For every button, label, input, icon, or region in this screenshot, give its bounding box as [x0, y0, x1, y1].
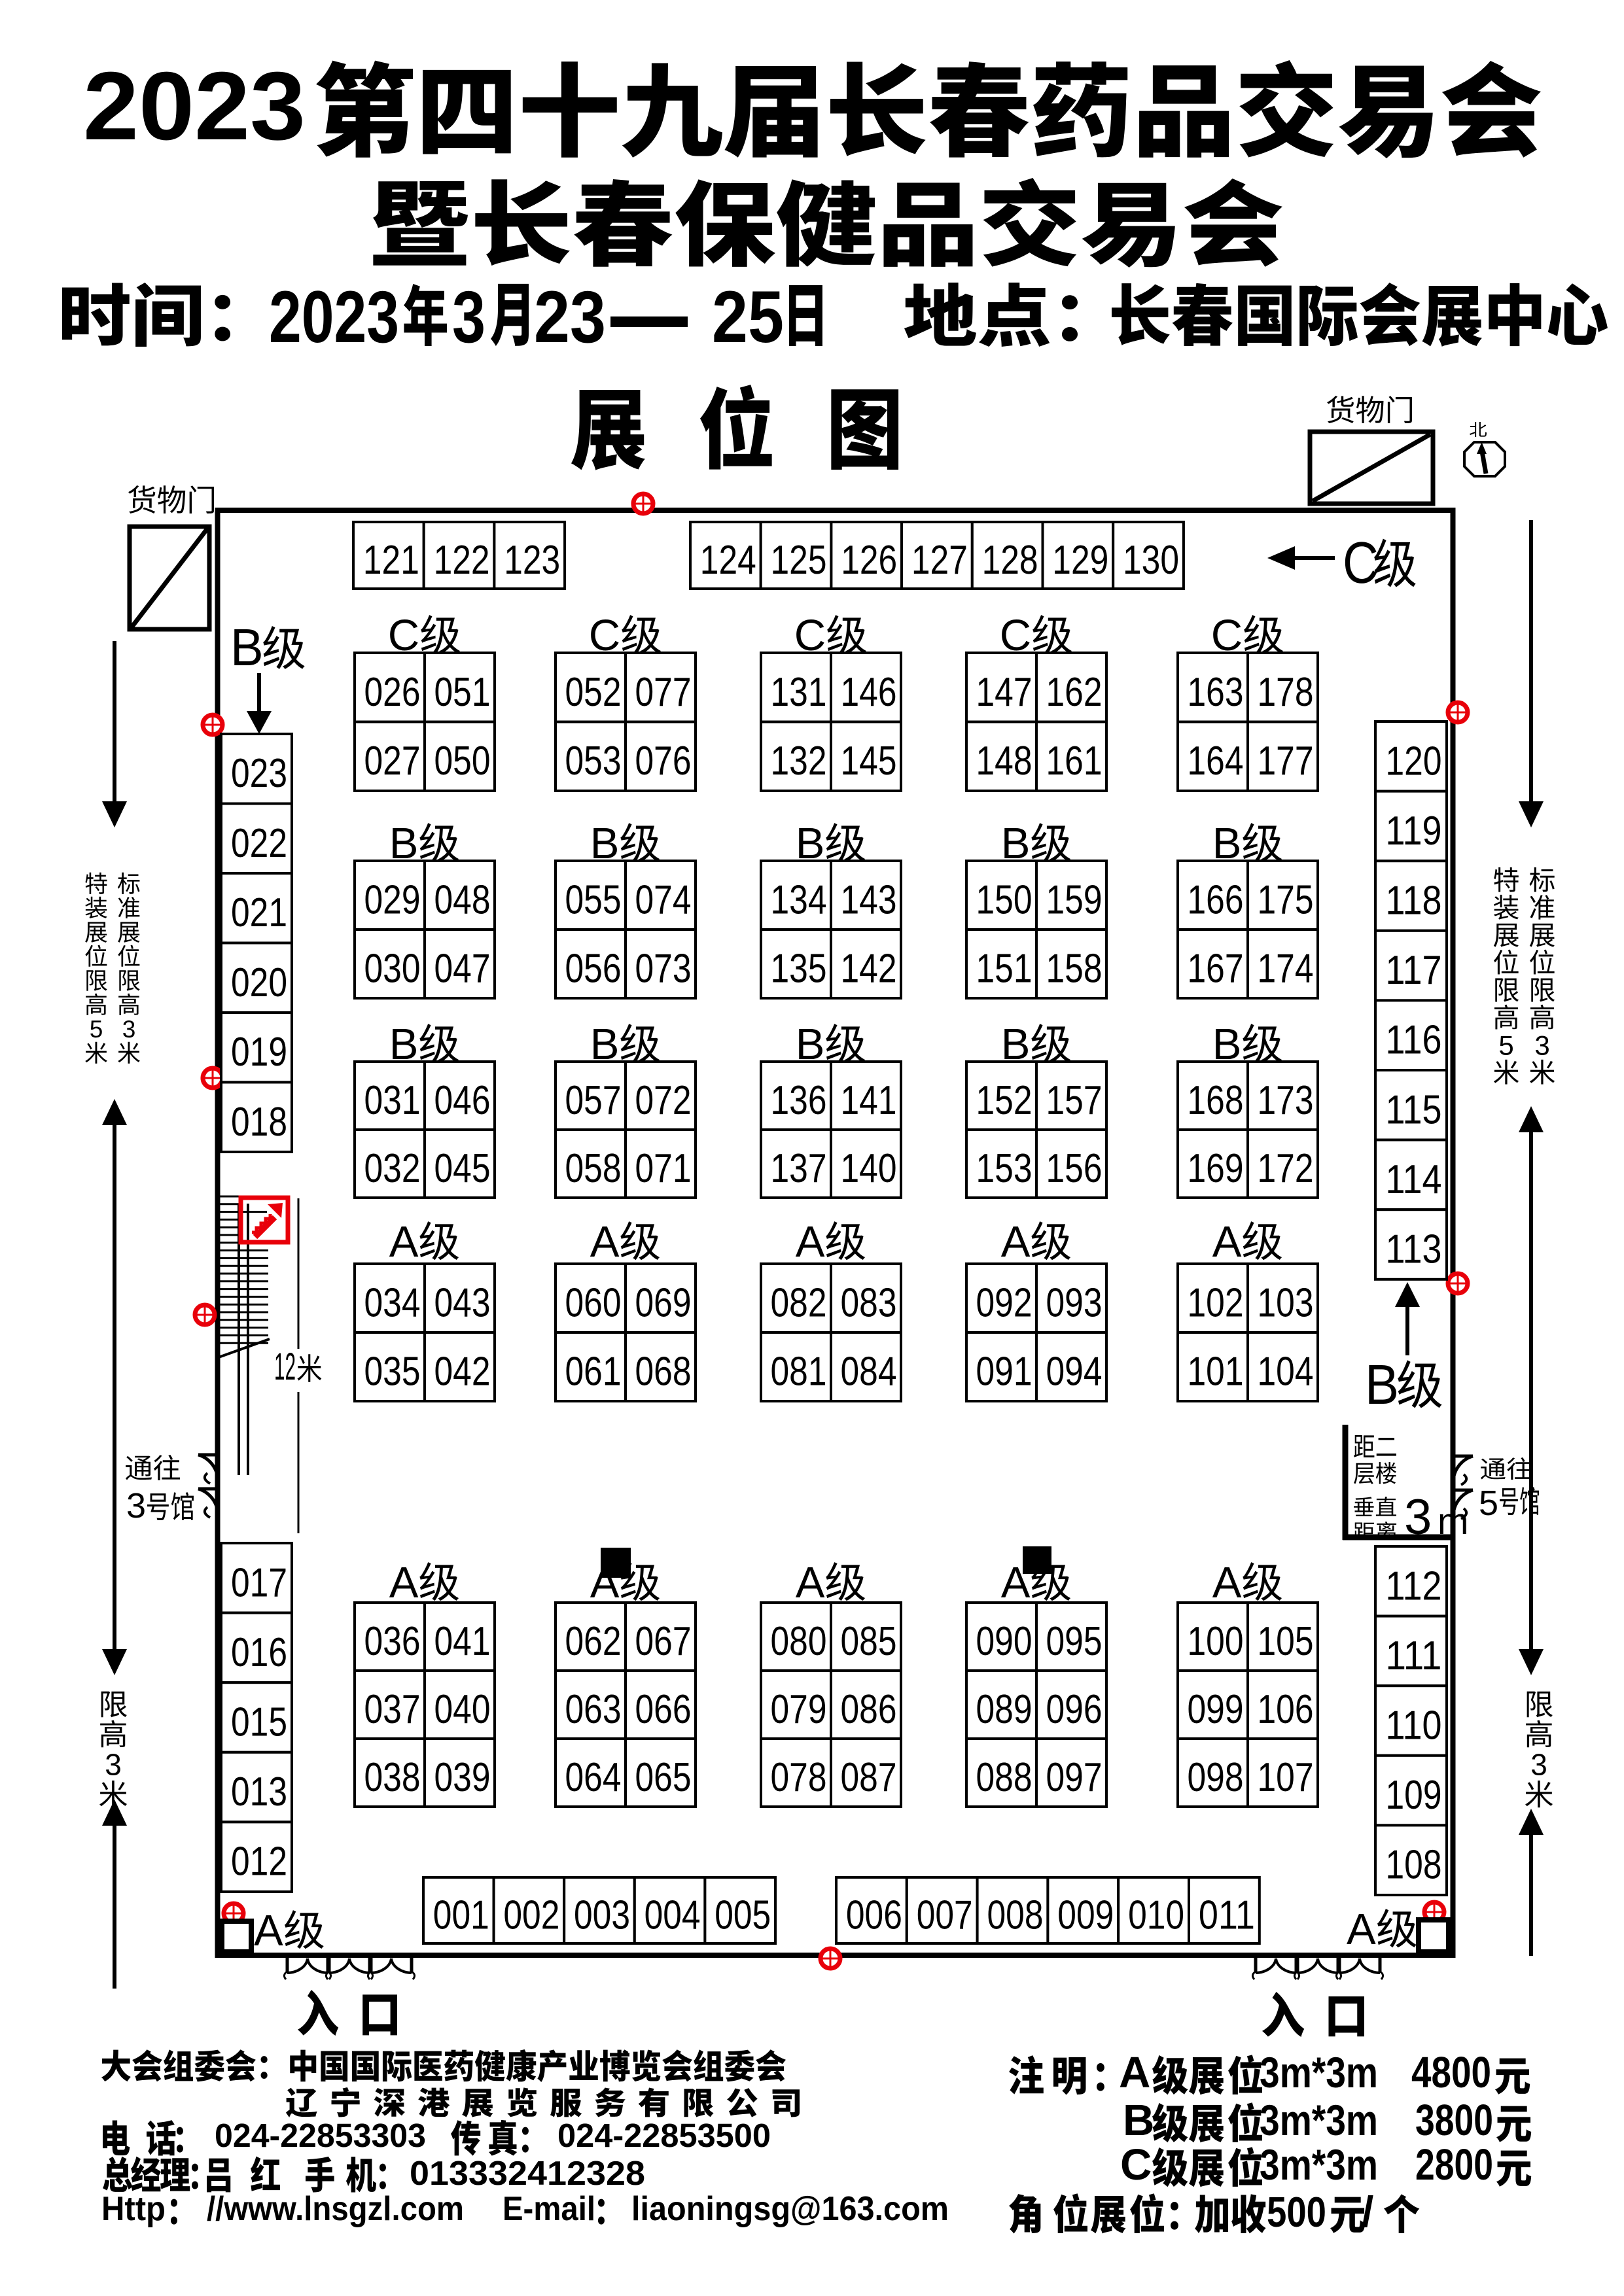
svg-text:034: 034 [364, 1281, 421, 1326]
svg-text:001: 001 [433, 1893, 489, 1938]
svg-text:500: 500 [1267, 2188, 1326, 2236]
svg-text:027: 027 [364, 739, 421, 784]
svg-text:150: 150 [976, 878, 1033, 923]
svg-text:136: 136 [771, 1078, 827, 1123]
svg-text:23: 23 [534, 276, 606, 358]
svg-text:141: 141 [841, 1078, 897, 1123]
svg-text:5: 5 [1479, 1484, 1498, 1523]
svg-text:liaoningsg@163.com: liaoningsg@163.com [631, 2190, 949, 2228]
svg-text:A: A [1212, 1217, 1242, 1266]
svg-text:099: 099 [1188, 1687, 1244, 1732]
svg-text:043: 043 [434, 1281, 491, 1326]
svg-text:057: 057 [565, 1078, 622, 1123]
svg-text:076: 076 [635, 739, 692, 784]
svg-text:039: 039 [434, 1755, 491, 1800]
svg-text:119: 119 [1386, 809, 1442, 854]
svg-text:A: A [389, 1217, 419, 1266]
svg-text:116: 116 [1386, 1018, 1442, 1063]
svg-text:019: 019 [231, 1030, 287, 1075]
svg-text:053: 053 [565, 739, 622, 784]
svg-text:178: 178 [1258, 670, 1314, 715]
svg-text:3: 3 [1534, 1030, 1549, 1060]
svg-text:4800: 4800 [1411, 2048, 1491, 2097]
svg-text:029: 029 [364, 878, 421, 923]
svg-text:016: 016 [231, 1630, 287, 1675]
svg-text:101: 101 [1188, 1349, 1244, 1395]
svg-text:3800: 3800 [1415, 2096, 1493, 2145]
svg-text:177: 177 [1258, 739, 1314, 784]
svg-text:050: 050 [434, 739, 491, 784]
svg-text:130: 130 [1123, 538, 1179, 583]
svg-text:169: 169 [1188, 1146, 1244, 1191]
svg-text:110: 110 [1386, 1703, 1442, 1748]
svg-text:018: 018 [231, 1100, 287, 1145]
svg-text:113: 113 [1386, 1227, 1442, 1272]
svg-text:159: 159 [1046, 878, 1103, 923]
svg-text:121: 121 [363, 538, 419, 583]
svg-text:074: 074 [635, 878, 692, 923]
svg-text:056: 056 [565, 947, 622, 992]
svg-text:145: 145 [841, 739, 897, 784]
svg-text:A: A [796, 1558, 825, 1607]
svg-text:A: A [1212, 1558, 1242, 1607]
svg-text:108: 108 [1386, 1843, 1442, 1888]
svg-text:030: 030 [364, 947, 421, 992]
svg-text:004: 004 [644, 1893, 701, 1938]
svg-text:3: 3 [452, 276, 485, 358]
svg-text:3: 3 [1404, 1489, 1432, 1545]
svg-text:012: 012 [231, 1839, 287, 1885]
svg-text:102: 102 [1188, 1281, 1244, 1326]
svg-text:118: 118 [1386, 878, 1442, 924]
svg-text:E-mail: E-mail [503, 2190, 595, 2228]
svg-text:146: 146 [841, 670, 897, 715]
svg-text:174: 174 [1258, 947, 1314, 992]
svg-text:041: 041 [434, 1619, 491, 1664]
svg-text:A: A [254, 1906, 283, 1955]
svg-text:123: 123 [504, 538, 560, 583]
svg-text:143: 143 [841, 878, 897, 923]
svg-text:3m*3m: 3m*3m [1260, 2048, 1378, 2096]
svg-text:158: 158 [1046, 947, 1103, 992]
svg-text:026: 026 [364, 670, 421, 715]
svg-text:120: 120 [1386, 739, 1442, 784]
svg-text:017: 017 [231, 1560, 287, 1605]
svg-text://www.lnsgzl.com: //www.lnsgzl.com [207, 2190, 464, 2228]
svg-text:124: 124 [700, 538, 756, 583]
svg-text:106: 106 [1258, 1687, 1314, 1732]
svg-text:003: 003 [574, 1893, 630, 1938]
svg-text:090: 090 [976, 1619, 1033, 1664]
svg-text:3m*3m: 3m*3m [1260, 2140, 1378, 2189]
svg-text:009: 009 [1057, 1893, 1114, 1938]
svg-text:006: 006 [846, 1893, 902, 1938]
svg-text:100: 100 [1188, 1619, 1244, 1664]
svg-text:162: 162 [1046, 670, 1103, 715]
svg-text:022: 022 [231, 821, 287, 866]
svg-text:122: 122 [434, 538, 490, 583]
svg-text:3: 3 [1530, 1748, 1547, 1782]
svg-text:082: 082 [771, 1281, 827, 1326]
svg-text:12: 12 [274, 1346, 296, 1388]
svg-text:163: 163 [1188, 670, 1244, 715]
svg-text:096: 096 [1046, 1687, 1103, 1732]
svg-text:072: 072 [635, 1078, 692, 1123]
svg-text:042: 042 [434, 1349, 491, 1395]
svg-text:088: 088 [976, 1755, 1033, 1800]
svg-text:166: 166 [1188, 878, 1244, 923]
svg-text:168: 168 [1188, 1078, 1244, 1123]
svg-text:A: A [590, 1217, 620, 1266]
svg-text:061: 061 [565, 1349, 622, 1395]
svg-text:032: 032 [364, 1146, 421, 1191]
svg-text:164: 164 [1188, 739, 1244, 784]
svg-text:104: 104 [1258, 1349, 1314, 1395]
svg-text:038: 038 [364, 1755, 421, 1800]
svg-text:167: 167 [1188, 947, 1244, 992]
svg-text:134: 134 [771, 878, 827, 923]
svg-text:095: 095 [1046, 1619, 1103, 1664]
svg-text:011: 011 [1199, 1893, 1255, 1938]
svg-text:097: 097 [1046, 1755, 1103, 1800]
svg-text:3: 3 [105, 1748, 122, 1782]
svg-text:020: 020 [231, 960, 287, 1005]
svg-text:151: 151 [976, 947, 1033, 992]
svg-text:127: 127 [911, 538, 968, 583]
svg-text:085: 085 [841, 1619, 897, 1664]
svg-text:3m*3m: 3m*3m [1260, 2096, 1378, 2144]
svg-text:B: B [1123, 2096, 1154, 2145]
svg-text:021: 021 [231, 890, 287, 935]
svg-text:137: 137 [771, 1146, 827, 1191]
svg-text:5: 5 [90, 1016, 103, 1043]
svg-text:114: 114 [1386, 1157, 1442, 1202]
svg-text:135: 135 [771, 947, 827, 992]
svg-text:094: 094 [1046, 1349, 1103, 1395]
svg-text:067: 067 [635, 1619, 692, 1664]
svg-text:A: A [1119, 2048, 1150, 2097]
svg-text:115: 115 [1386, 1087, 1442, 1132]
svg-text:065: 065 [635, 1755, 692, 1800]
svg-text:055: 055 [565, 878, 622, 923]
svg-text:A: A [1001, 1217, 1031, 1266]
svg-text:005: 005 [715, 1893, 771, 1938]
svg-text:A: A [389, 1558, 419, 1607]
svg-text:013: 013 [231, 1769, 287, 1815]
svg-text:008: 008 [987, 1893, 1044, 1938]
svg-text:140: 140 [841, 1146, 897, 1191]
svg-text:128: 128 [982, 538, 1038, 583]
svg-text:098: 098 [1188, 1755, 1244, 1800]
svg-text:117: 117 [1386, 948, 1442, 993]
svg-text:089: 089 [976, 1687, 1033, 1732]
svg-text:103: 103 [1258, 1281, 1314, 1326]
svg-text:037: 037 [364, 1687, 421, 1732]
svg-text:031: 031 [364, 1078, 421, 1123]
svg-text:126: 126 [841, 538, 897, 583]
svg-text:068: 068 [635, 1349, 692, 1395]
svg-text:A: A [796, 1217, 825, 1266]
svg-text:058: 058 [565, 1146, 622, 1191]
svg-text:2800: 2800 [1415, 2140, 1493, 2189]
svg-text:2023: 2023 [269, 276, 399, 358]
svg-text:047: 047 [434, 947, 491, 992]
svg-text:A: A [1347, 1905, 1376, 1954]
svg-text:002: 002 [503, 1893, 559, 1938]
svg-text:156: 156 [1046, 1146, 1103, 1191]
svg-text:087: 087 [841, 1755, 897, 1800]
svg-text:112: 112 [1386, 1563, 1442, 1609]
svg-text:175: 175 [1258, 878, 1314, 923]
svg-text:073: 073 [635, 947, 692, 992]
svg-text:152: 152 [976, 1078, 1033, 1123]
svg-text:093: 093 [1046, 1281, 1103, 1326]
svg-text:m: m [1438, 1501, 1468, 1542]
svg-text:066: 066 [635, 1687, 692, 1732]
svg-text:129: 129 [1052, 538, 1108, 583]
svg-text:132: 132 [771, 739, 827, 784]
svg-text:046: 046 [434, 1078, 491, 1123]
svg-text:040: 040 [434, 1687, 491, 1732]
svg-text:107: 107 [1258, 1755, 1314, 1800]
svg-text:080: 080 [771, 1619, 827, 1664]
svg-text:035: 035 [364, 1349, 421, 1395]
svg-text:092: 092 [976, 1281, 1033, 1326]
svg-text:147: 147 [976, 670, 1033, 715]
svg-text:036: 036 [364, 1619, 421, 1664]
svg-text:091: 091 [976, 1349, 1033, 1395]
svg-text:024-22853500: 024-22853500 [557, 2117, 771, 2154]
svg-text:161: 161 [1046, 739, 1103, 784]
svg-text:125: 125 [771, 538, 827, 583]
svg-text:064: 064 [565, 1755, 622, 1800]
svg-text:051: 051 [434, 670, 491, 715]
svg-text:024-22853303: 024-22853303 [215, 2117, 426, 2154]
svg-text:109: 109 [1386, 1773, 1442, 1818]
svg-text:060: 060 [565, 1281, 622, 1326]
svg-text:010: 010 [1128, 1893, 1184, 1938]
svg-text:111: 111 [1386, 1633, 1442, 1679]
svg-text:2023: 2023 [83, 52, 306, 160]
svg-text:071: 071 [635, 1146, 692, 1191]
svg-text:062: 062 [565, 1619, 622, 1664]
svg-text:048: 048 [434, 878, 491, 923]
svg-text:052: 052 [565, 670, 622, 715]
svg-text:013332412328: 013332412328 [410, 2155, 645, 2193]
svg-text:3: 3 [122, 1016, 136, 1043]
svg-text:25: 25 [712, 276, 784, 358]
svg-text:148: 148 [976, 739, 1033, 784]
svg-text:086: 086 [841, 1687, 897, 1732]
svg-text:077: 077 [635, 670, 692, 715]
svg-text:007: 007 [917, 1893, 973, 1938]
svg-text:078: 078 [771, 1755, 827, 1800]
svg-text:023: 023 [231, 751, 287, 796]
svg-text:084: 084 [841, 1349, 897, 1395]
svg-text:063: 063 [565, 1687, 622, 1732]
svg-text:173: 173 [1258, 1078, 1314, 1123]
svg-text:3: 3 [126, 1486, 146, 1525]
svg-text:081: 081 [771, 1349, 827, 1395]
svg-text:157: 157 [1046, 1078, 1103, 1123]
svg-text:015: 015 [231, 1700, 287, 1745]
svg-text:Http: Http [101, 2190, 166, 2228]
svg-text:131: 131 [771, 670, 827, 715]
svg-text:C: C [1120, 2140, 1152, 2189]
svg-text:172: 172 [1258, 1146, 1314, 1191]
svg-text:153: 153 [976, 1146, 1033, 1191]
svg-text:5: 5 [1498, 1030, 1513, 1060]
svg-text:105: 105 [1258, 1619, 1314, 1664]
svg-text:083: 083 [841, 1281, 897, 1326]
svg-text:069: 069 [635, 1281, 692, 1326]
svg-text:079: 079 [771, 1687, 827, 1732]
svg-text:045: 045 [434, 1146, 491, 1191]
svg-text:142: 142 [841, 947, 897, 992]
